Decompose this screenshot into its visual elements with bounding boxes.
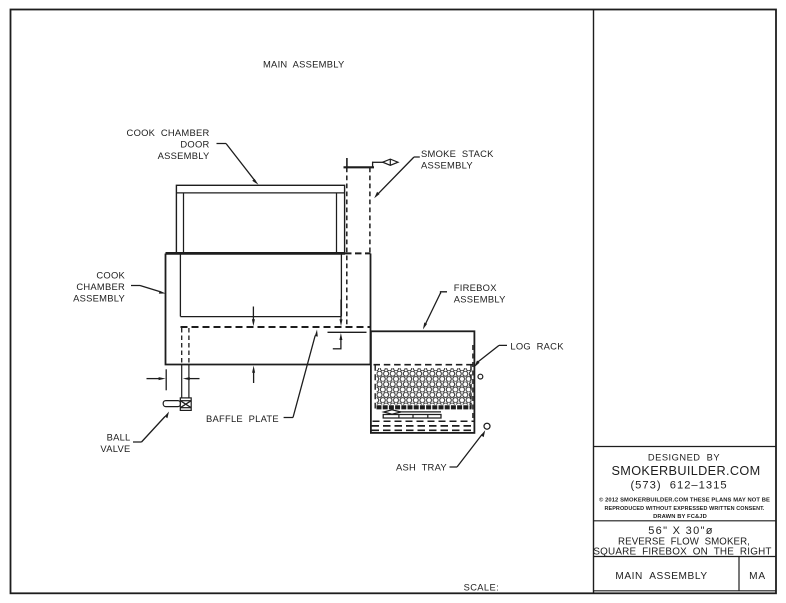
- svg-text:REPRODUCED WITHOUT EXPRESSED W: REPRODUCED WITHOUT EXPRESSED WRITTEN CON…: [604, 506, 764, 512]
- svg-text:FIREBOX: FIREBOX: [454, 282, 497, 293]
- svg-text:COOK: COOK: [96, 270, 125, 281]
- svg-text:SMOKERBUILDER.COM: SMOKERBUILDER.COM: [611, 464, 760, 478]
- svg-text:LOG RACK: LOG RACK: [510, 341, 564, 352]
- svg-text:VALVE: VALVE: [100, 443, 130, 454]
- svg-text:MAIN ASSEMBLY: MAIN ASSEMBLY: [263, 58, 345, 69]
- svg-text:© 2012 SMOKERBUILDER.COM THESE: © 2012 SMOKERBUILDER.COM THESE PLANS MAY…: [599, 496, 770, 503]
- svg-text:ASH TRAY: ASH TRAY: [396, 462, 447, 473]
- svg-text:CHAMBER: CHAMBER: [76, 281, 125, 292]
- svg-text:COOK CHAMBER: COOK CHAMBER: [127, 127, 210, 138]
- svg-text:SQUARE FIREBOX ON THE RIGH: SQUARE FIREBOX ON THE RIGHT: [593, 547, 771, 558]
- svg-text:ASSEMBLY: ASSEMBLY: [158, 150, 210, 161]
- svg-text:DESIGNED BY: DESIGNED BY: [648, 453, 720, 463]
- svg-text:(573) 612–1315: (573) 612–1315: [630, 480, 727, 492]
- svg-text:SMOKE STACK: SMOKE STACK: [421, 148, 494, 159]
- svg-text:ASSEMBLY: ASSEMBLY: [454, 293, 506, 304]
- svg-text:DRAWN BY FC&JD: DRAWN BY FC&JD: [653, 514, 707, 520]
- svg-text:ASSEMBLY: ASSEMBLY: [73, 293, 125, 304]
- svg-text:MAIN ASSEMBLY: MAIN ASSEMBLY: [615, 571, 707, 582]
- svg-text:MA: MA: [749, 571, 766, 582]
- svg-text:BALL: BALL: [107, 431, 131, 442]
- svg-text:56" X 30"ø: 56" X 30"ø: [648, 525, 713, 537]
- svg-text:BAFFLE PLATE: BAFFLE PLATE: [206, 413, 279, 424]
- svg-text:ASSEMBLY: ASSEMBLY: [421, 159, 473, 170]
- svg-text:DOOR: DOOR: [180, 139, 209, 150]
- svg-text:SCALE:: SCALE:: [464, 583, 499, 593]
